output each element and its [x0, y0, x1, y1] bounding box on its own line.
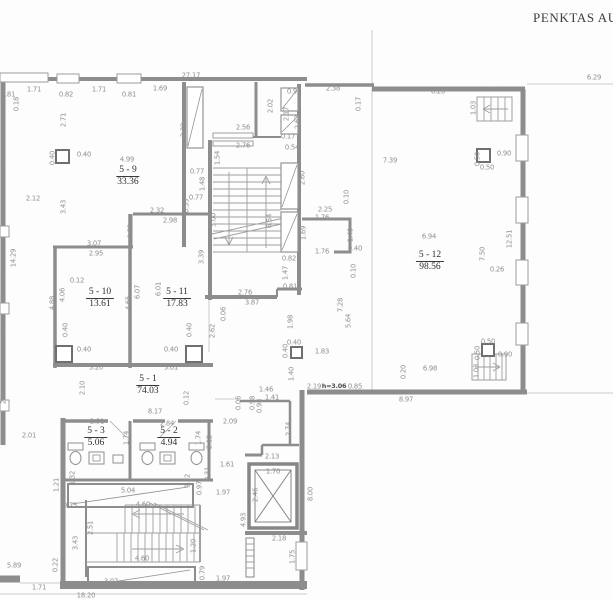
- dimension-label: 6.29: [587, 75, 601, 82]
- drawing-title: PENKTAS AUK: [533, 10, 613, 26]
- dimension-label: 2.13: [265, 454, 279, 461]
- room-number: 5 - 9: [116, 165, 139, 177]
- dimension-label: 1.32: [70, 471, 77, 485]
- room-number: 5 - 12: [416, 250, 444, 262]
- scanned-floor-plan-page: { "title": "PENKTAS AUK", "colors": { "b…: [0, 0, 613, 600]
- dimension-label: 4.06: [60, 288, 67, 302]
- dimension-label: 1.61: [220, 462, 234, 469]
- dimension-label: 8.97: [399, 397, 413, 404]
- dimension-label: 0.26: [490, 267, 504, 274]
- room-number: 5 - 11: [163, 287, 191, 299]
- dimension-label: 0.77: [189, 195, 203, 202]
- dimension-label: 0.85: [348, 384, 362, 391]
- dimension-label: 0.40: [283, 344, 290, 358]
- room-area: 5.06: [84, 438, 107, 449]
- dimension-label: 0.40: [77, 347, 91, 354]
- dimension-label: 2.25: [318, 207, 332, 214]
- dimension-label: 3.07: [104, 579, 118, 586]
- dimension-label: 8.17: [148, 409, 162, 416]
- room-label: 5 - 1117.83: [163, 287, 191, 311]
- room-label: 5 - 174.03: [136, 374, 159, 398]
- dimension-label: 1.71: [27, 87, 41, 94]
- dimension-label: 0.20: [401, 365, 408, 379]
- dimension-label: 2.38: [326, 86, 340, 93]
- dimension-label: 3.43: [73, 536, 80, 550]
- dimension-label: 0.98: [257, 399, 264, 413]
- dimension-label: 1.71: [32, 585, 46, 592]
- dimension-label: 0.40: [187, 323, 194, 337]
- room-area: 17.83: [163, 299, 191, 310]
- dimension-label: 0.82: [282, 256, 296, 263]
- dimension-label: 2.95: [89, 251, 103, 258]
- dimension-label: 0.22: [53, 558, 60, 572]
- room-label: 5 - 933.36: [116, 165, 139, 189]
- dimension-label: 0.50: [481, 339, 495, 346]
- dimension-label: 0.17: [281, 134, 295, 141]
- dimension-label: 4.88: [50, 296, 57, 310]
- dimension-label: 2.17: [284, 107, 291, 121]
- dimension-label: 1.76: [315, 249, 329, 256]
- dimension-label: 2.12: [207, 435, 214, 449]
- dimension-label: 0.06: [221, 307, 228, 321]
- dimension-label: 4.93: [241, 513, 248, 527]
- dimension-label: 1.74: [196, 431, 203, 445]
- dimension-label: 1.97: [216, 490, 230, 497]
- dimension-label: 3.07: [87, 241, 101, 248]
- room-label: 5 - 35.06: [84, 426, 107, 450]
- upper-staircase: [212, 133, 286, 252]
- dimension-label: 0.06: [236, 396, 243, 410]
- dimension-label: 0.40: [77, 152, 91, 159]
- dimension-label: 1.97: [216, 576, 230, 583]
- dimension-label: 0.53: [184, 199, 191, 213]
- dimension-label: 1.71: [92, 87, 106, 94]
- dimension-label: 1.47: [283, 266, 290, 280]
- dimension-label: 2.12: [26, 196, 40, 203]
- dimension-label: 3.22: [181, 123, 188, 137]
- dimension-label: 1.54: [215, 151, 222, 165]
- dimension-label: 2.64: [1, 271, 8, 285]
- dimension-label: 6.94: [422, 234, 436, 241]
- dimension-label: 2.46: [253, 488, 260, 502]
- dimension-label: 0.12: [184, 391, 191, 405]
- dimension-label: 0.40: [348, 246, 362, 253]
- dimension-label: 2.18: [272, 536, 286, 543]
- dimension-label: 1.50: [486, 87, 500, 94]
- dimension-label: 2.74: [286, 422, 293, 436]
- dimension-label: 0.92: [287, 89, 301, 96]
- dimension-label: 1.98: [288, 315, 295, 329]
- dimension-label: 0.18: [14, 97, 21, 111]
- dimension-label: 0.97: [197, 481, 204, 495]
- dimension-label: 1.69: [153, 86, 167, 93]
- room-number: 5 - 10: [86, 287, 114, 299]
- dimension-label: 1.69: [301, 226, 308, 240]
- room-label: 5 - 1298.56: [416, 250, 444, 274]
- dimension-label: 2.09: [223, 419, 237, 426]
- dimension-label: 1.49: [348, 228, 355, 242]
- dimension-label: 0.90: [497, 151, 511, 158]
- interior-walls: [53, 82, 350, 577]
- dimension-label: 2.65: [1, 390, 8, 404]
- dimension-label: 1.32: [128, 224, 135, 238]
- dimension-label: 0.50: [475, 346, 482, 360]
- dimension-label: 0.31: [205, 467, 212, 481]
- floor-plan: 27.170.811.710.821.710.811.690.922.380.1…: [0, 0, 613, 600]
- dimension-label: 1.32: [185, 474, 192, 488]
- dimension-label: 2.91: [90, 419, 104, 426]
- corridor-panels: [68, 484, 195, 587]
- dimension-label: 0.40: [63, 323, 70, 337]
- dimension-label: 3.43: [61, 200, 68, 214]
- dimension-label: 4.60: [136, 502, 150, 509]
- dimension-label: 0.81: [122, 92, 136, 99]
- dimension-label: 2.01: [22, 433, 36, 440]
- dimension-label: 3.00: [211, 213, 218, 227]
- dimension-label: 12.51: [507, 230, 514, 248]
- dimension-label: 0.40: [50, 151, 57, 165]
- dimension-label: 0.10: [344, 190, 351, 204]
- dimension-label: 7.39: [383, 158, 397, 165]
- dimension-label: 2.02: [268, 99, 275, 113]
- dimension-label: 0.17: [356, 97, 363, 111]
- dimension-label: 1.40: [289, 367, 296, 381]
- dimension-label: 6.20: [431, 89, 445, 96]
- dimension-label: 3.01: [164, 365, 178, 372]
- dimension-label: 0.90: [498, 352, 512, 359]
- dimension-label: 7.28: [338, 298, 345, 312]
- dimension-label: 2.63: [295, 115, 302, 129]
- dimension-label: 13.02: [521, 228, 528, 246]
- dimension-label: 3.87: [245, 300, 259, 307]
- window-frames: [0, 73, 528, 570]
- dimension-label: 2.98: [163, 218, 177, 225]
- dimension-label: 2.76: [236, 143, 250, 150]
- dimension-label: 1.83: [315, 349, 329, 356]
- dimension-label: 8.00: [308, 487, 315, 501]
- dimension-label: 4.65: [126, 296, 133, 310]
- dimension-label: 1.21: [54, 478, 61, 492]
- room-area: 33.36: [116, 177, 139, 188]
- dimension-label: 7.50: [480, 247, 487, 261]
- dimension-label: 1.76: [315, 215, 329, 222]
- dimension-label: 6.03: [1, 153, 8, 167]
- dimension-label: 2.10: [80, 381, 87, 395]
- dimension-label: 1.46: [259, 387, 273, 394]
- room-area: 4.94: [157, 438, 180, 449]
- dimension-label: 0.10: [351, 264, 358, 278]
- dimension-label: 27.17: [182, 73, 200, 80]
- dimension-label: 1.48: [200, 177, 207, 191]
- dimension-label: 2.51: [88, 521, 95, 535]
- room-area: 98.56: [416, 262, 444, 273]
- dimension-label: 1.74: [124, 431, 131, 445]
- dimension-label: 1.75: [290, 550, 297, 564]
- dimension-label: 6.98: [423, 366, 437, 373]
- dimension-label: 2.76: [238, 290, 252, 297]
- dimension-label: 0.82: [59, 92, 73, 99]
- dimension-label: 2.65: [1, 328, 8, 342]
- dimension-label: 2.62: [210, 324, 217, 338]
- dimension-label: 1.71: [381, 390, 395, 397]
- dimension-label: 5.04: [121, 488, 135, 495]
- dimension-label: 2.56: [236, 125, 250, 132]
- dimension-label: h=3.06: [322, 383, 346, 389]
- dimension-label: 1.20: [191, 539, 198, 553]
- room-number: 5 - 1: [136, 374, 159, 386]
- dimension-label: 1.03: [471, 101, 478, 115]
- dimension-label: 1.41: [265, 395, 279, 402]
- room-label: 5 - 1013.61: [86, 287, 114, 311]
- dimension-label: 0.81: [283, 284, 297, 291]
- dimension-label: 14.29: [11, 249, 18, 267]
- room-number: 5 - 3: [84, 426, 107, 438]
- dimension-label: 0.12: [70, 278, 84, 285]
- dimension-label: 6.07: [135, 285, 142, 299]
- dimension-label: 0.77: [190, 169, 204, 176]
- dimension-label: 0.50: [480, 165, 494, 172]
- room-area: 13.61: [86, 299, 114, 310]
- dimension-label: 1.03: [474, 364, 481, 378]
- dimension-label: 2.32: [150, 208, 164, 215]
- room-area: 74.03: [136, 386, 159, 397]
- dimension-label: 2.60: [300, 171, 307, 185]
- dimension-label: 1.70: [266, 469, 280, 476]
- dimension-label: 2.19: [307, 384, 321, 391]
- dimension-label: 4.60: [135, 556, 149, 563]
- dimension-label: 5.64: [346, 314, 353, 328]
- dimension-label: 2.71: [61, 113, 68, 127]
- room-label: 5 - 24.94: [157, 426, 180, 450]
- dimension-label: 0.54: [285, 145, 299, 152]
- dimension-label: 5.89: [7, 563, 21, 570]
- dimension-label: 3.39: [199, 250, 206, 264]
- dimension-label: 0.75: [63, 503, 77, 510]
- dimension-label: 3.20: [89, 365, 103, 372]
- dimension-label: 0.40: [164, 347, 178, 354]
- dimension-label: 0.79: [200, 566, 207, 580]
- dimension-label: 6.01: [156, 282, 163, 296]
- dimension-label: 4.99: [120, 157, 134, 164]
- room-number: 5 - 2: [157, 426, 180, 438]
- dimension-label: 6.54: [267, 214, 274, 228]
- dimension-label: 18.20: [77, 593, 95, 600]
